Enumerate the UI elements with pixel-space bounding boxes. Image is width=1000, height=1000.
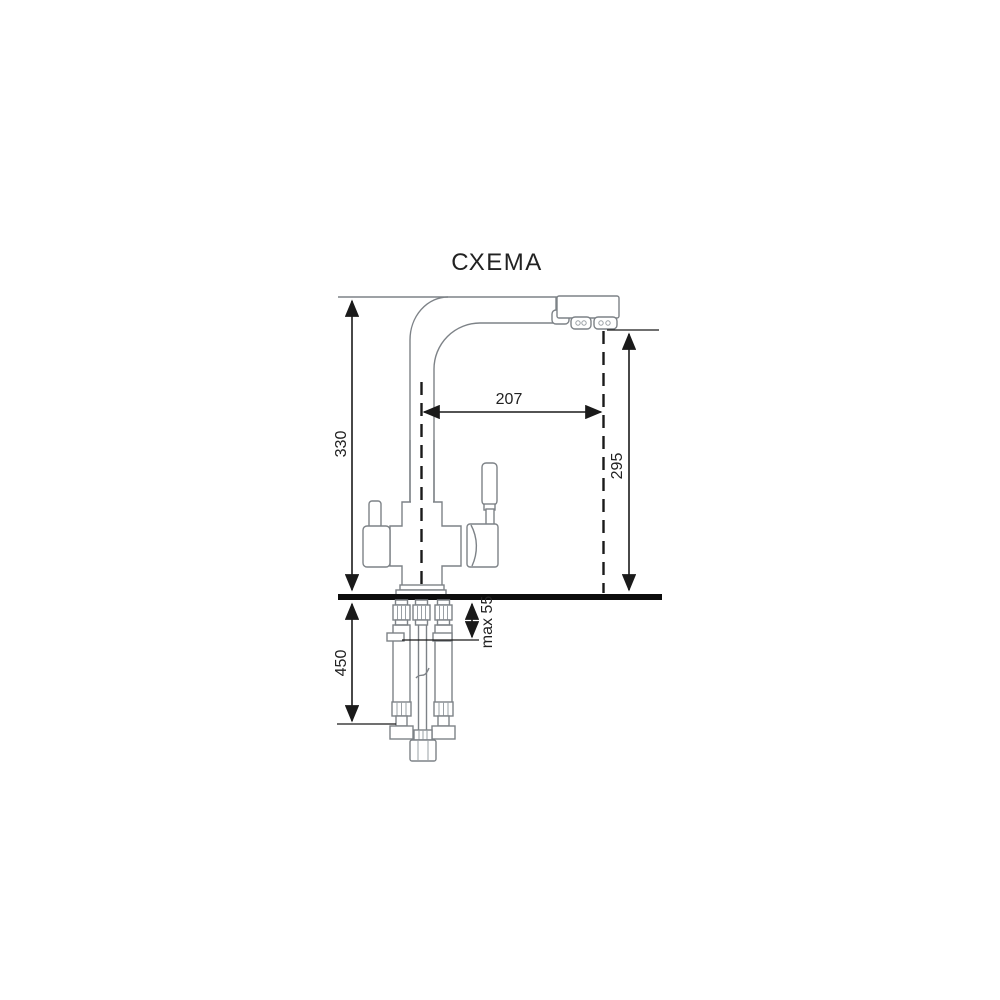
right-handle-neck bbox=[486, 509, 494, 525]
countertop bbox=[338, 594, 662, 600]
connector-center bbox=[413, 600, 430, 625]
base-flange bbox=[396, 585, 446, 595]
dimension-under-counter-depth: 450 bbox=[333, 604, 396, 724]
right-handle-body bbox=[467, 524, 498, 567]
dim-spout-reach-label: 207 bbox=[496, 391, 523, 408]
left-handle-body bbox=[363, 526, 390, 567]
dim-spout-height-label: 295 bbox=[609, 453, 626, 480]
flange-upper bbox=[400, 585, 444, 590]
dim-mount-thickness-label: max 55 bbox=[479, 596, 496, 649]
supply-hose-right bbox=[432, 625, 455, 739]
connector-left bbox=[393, 600, 410, 625]
left-handle-lever bbox=[369, 501, 381, 528]
left-handle bbox=[363, 501, 390, 567]
bracket-tab-left bbox=[387, 633, 404, 641]
right-handle-lever bbox=[482, 463, 497, 505]
faucet-dimension-diagram: СХЕМА bbox=[0, 0, 1000, 1000]
mixer-cross-body bbox=[390, 502, 461, 588]
spout-head bbox=[552, 296, 619, 329]
diagram-title: СХЕМА bbox=[451, 249, 543, 276]
dimension-overall-height: 330 bbox=[333, 301, 352, 590]
dim-under-counter-depth-label: 450 bbox=[333, 650, 350, 677]
diagram-canvas: СХЕМА bbox=[0, 0, 1000, 1000]
dim-overall-height-label: 330 bbox=[333, 431, 350, 458]
under-counter-assembly bbox=[387, 600, 455, 761]
mounting-nut bbox=[410, 740, 436, 761]
dimension-spout-height: 295 bbox=[607, 330, 659, 590]
right-handle bbox=[467, 463, 498, 567]
spout-outer-curve bbox=[410, 297, 448, 502]
mounting-stud bbox=[410, 625, 436, 761]
faucet-body bbox=[338, 296, 619, 595]
supply-hose-left bbox=[390, 625, 413, 739]
dimension-spout-reach: 207 bbox=[424, 391, 601, 412]
connector-right bbox=[435, 600, 452, 625]
spout-head-block bbox=[557, 296, 619, 318]
aerator-left bbox=[571, 317, 591, 329]
